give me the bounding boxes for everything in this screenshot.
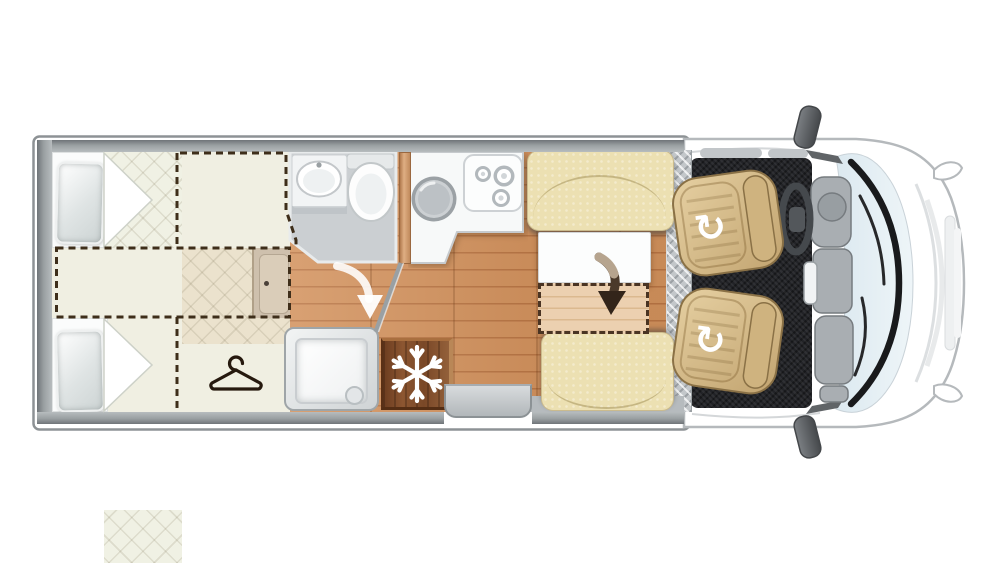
hanger-icon bbox=[211, 357, 261, 389]
motorhome-floorplan: ↻ bbox=[0, 0, 1000, 563]
hallway-diagonal-wall-edge bbox=[379, 263, 404, 332]
steering-wheel-icon bbox=[782, 186, 810, 252]
door-swing-arrow-icon bbox=[337, 266, 383, 319]
blanket-fold-bottom bbox=[104, 319, 152, 411]
cab-seat-bottom bbox=[670, 285, 787, 397]
cab-seat-top bbox=[670, 167, 787, 279]
table-fold-arrow-icon bbox=[598, 257, 626, 315]
blanket-fold-top bbox=[104, 153, 152, 247]
bed-conversion-dashed-lines bbox=[57, 153, 297, 410]
overlay-layer: ↻ bbox=[0, 0, 1000, 563]
